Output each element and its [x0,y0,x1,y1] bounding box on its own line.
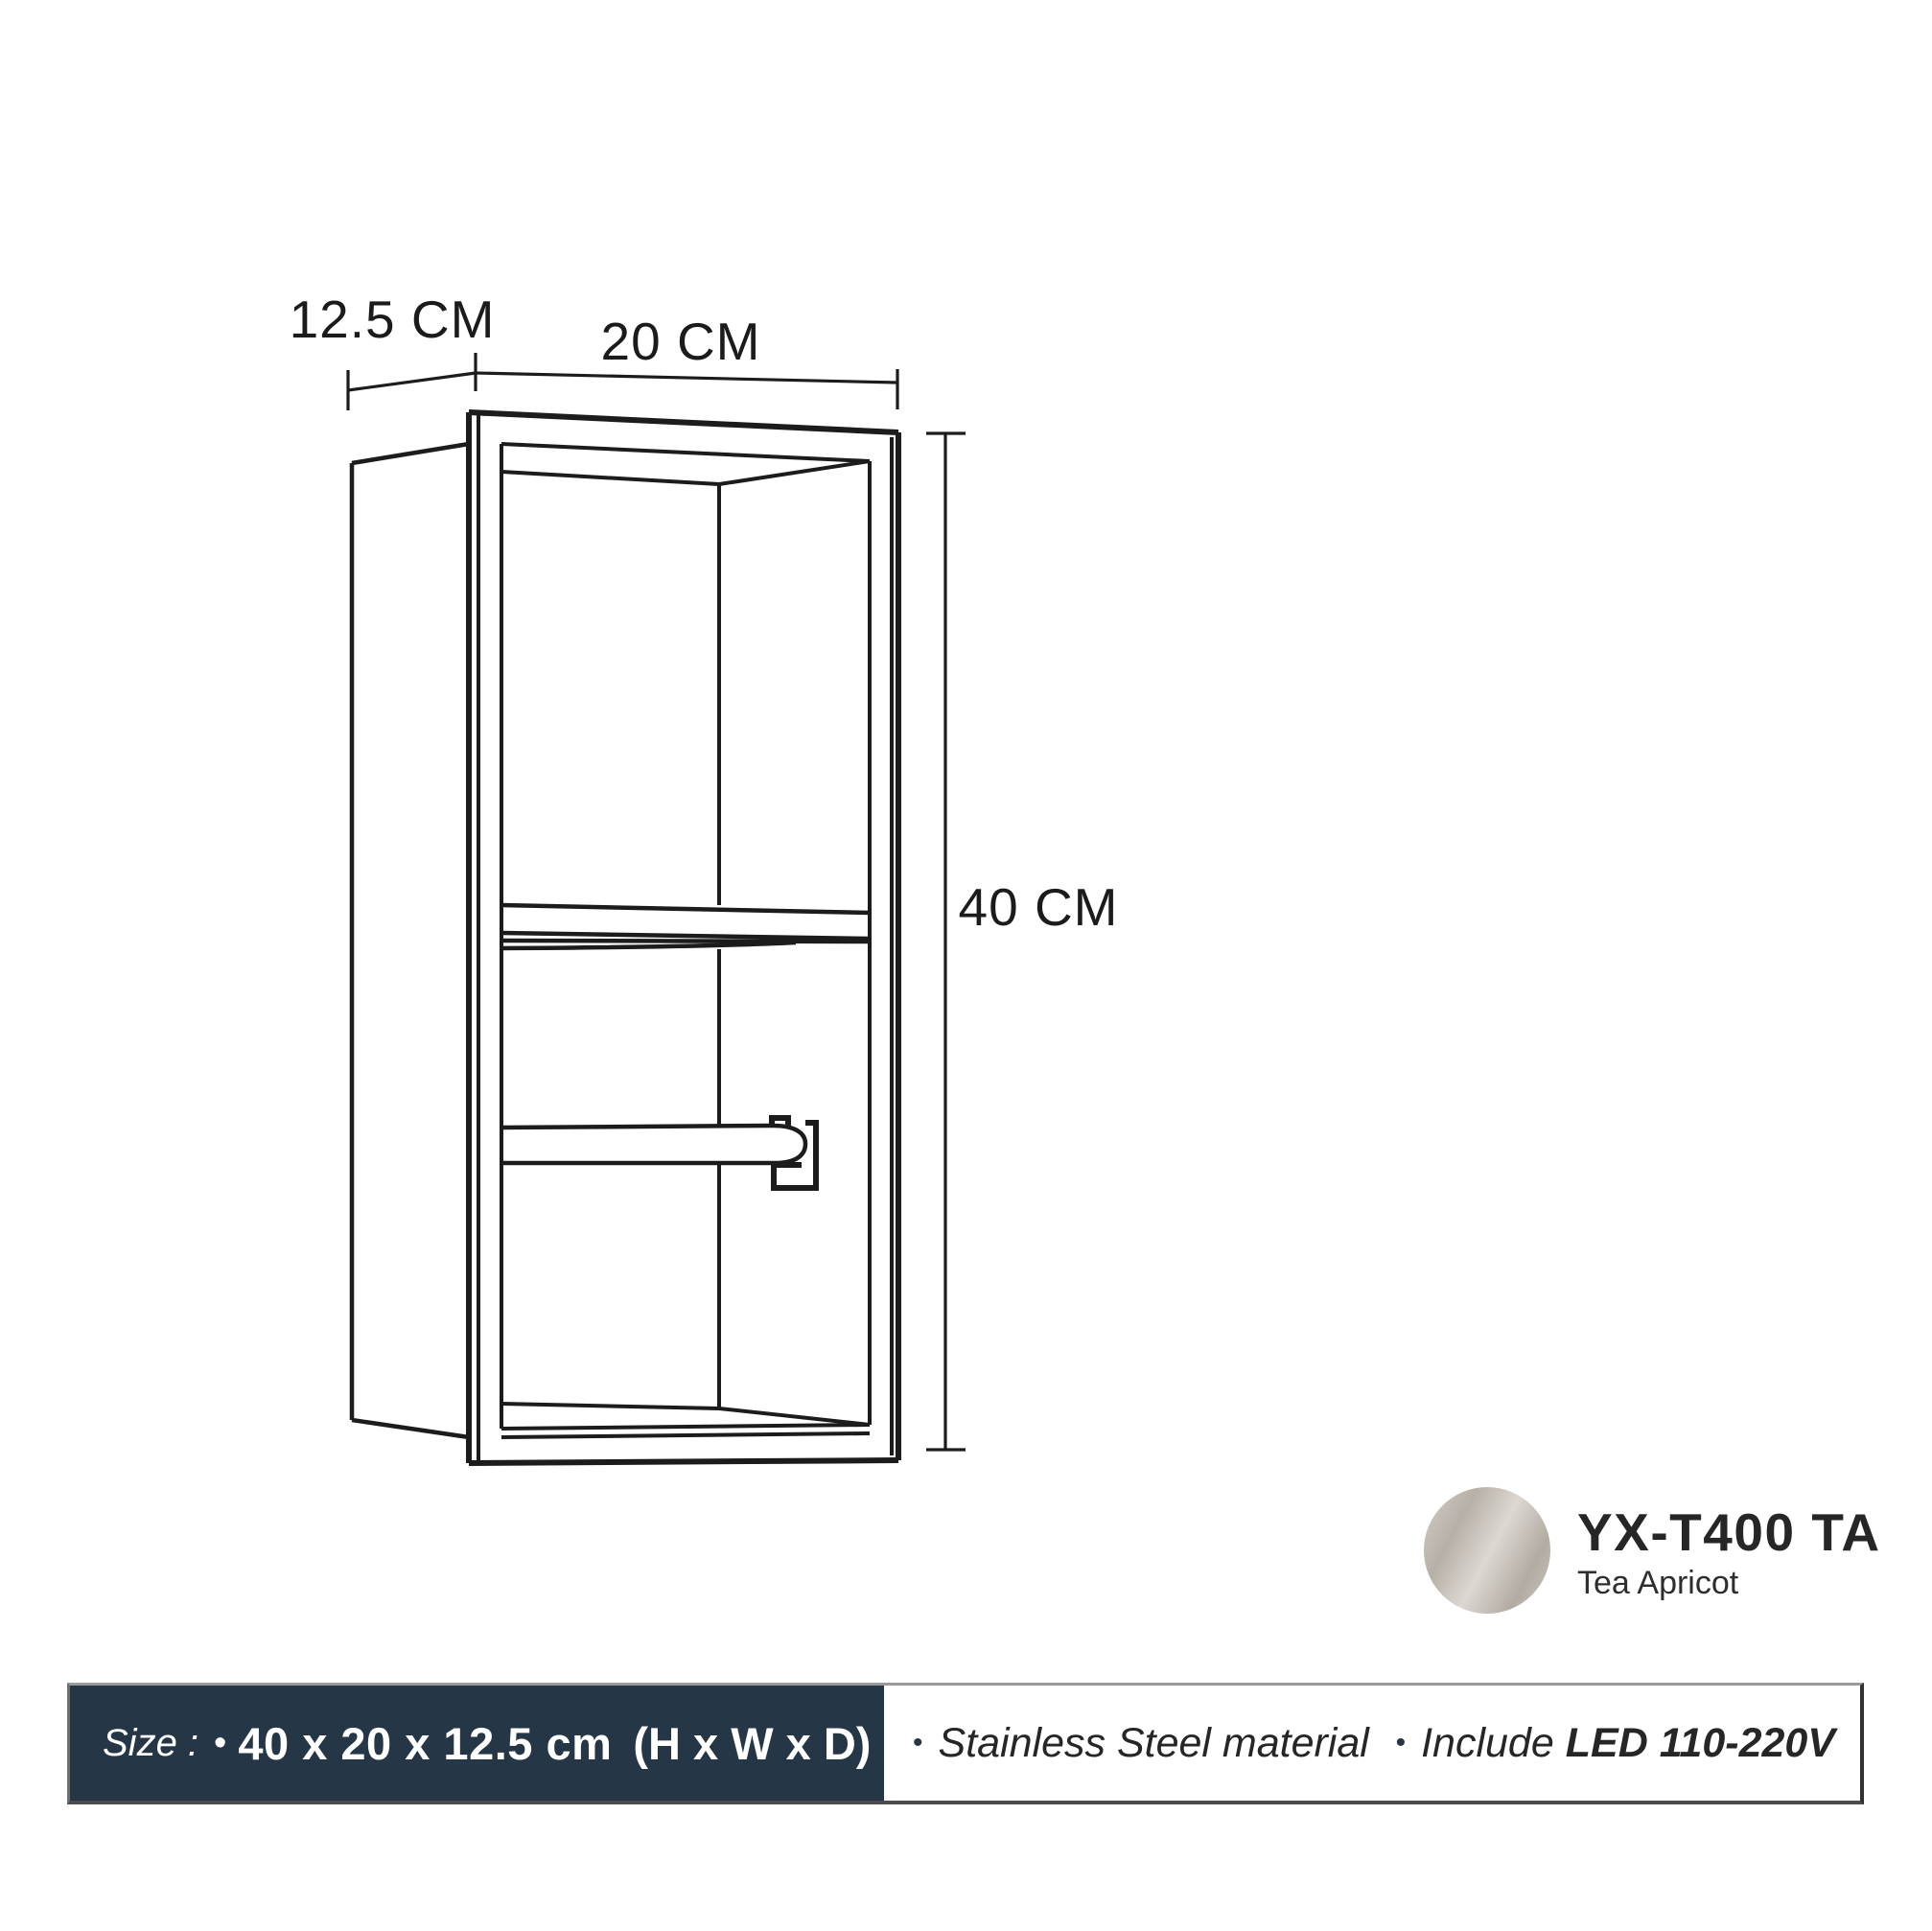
cabinet-diagram: 12.5 CM 20 CM 40 CM [0,0,1932,1931]
bullet-icon: • [913,1727,923,1759]
size-label: Size : [103,1722,198,1765]
cabinet-shelf [501,905,871,948]
spec-box: • Stainless Steel material • Include LED… [884,1686,1860,1801]
depth-dimension-label: 12.5 CM [290,290,496,349]
page: 12.5 CM 20 CM 40 CM YX-T400 TA Tea Apric… [0,0,1932,1931]
color-swatch-icon [1424,1487,1550,1614]
product-model: YX-T400 TA [1577,1506,1881,1559]
size-value: 40 x 20 x 12.5 cm [238,1717,612,1770]
size-bar: Size : • 40 x 20 x 12.5 cm (H x W x D) •… [67,1683,1864,1804]
material-text: Stainless Steel material [939,1720,1369,1767]
product-text: YX-T400 TA Tea Apricot [1577,1506,1881,1599]
height-dimension-label: 40 CM [959,877,1119,937]
dimension-lines [348,353,966,1450]
towel-bar [501,1118,816,1188]
size-suffix: (H x W x D) [633,1717,871,1770]
size-box: Size : • 40 x 20 x 12.5 cm (H x W x D) [70,1686,884,1801]
product-color-name: Tea Apricot [1577,1567,1881,1599]
material-spec: • Stainless Steel material [913,1720,1369,1767]
bullet-icon: • [214,1723,226,1764]
bullet-icon: • [1396,1727,1407,1759]
include-value: LED 110-220V [1566,1720,1835,1767]
include-spec: • Include LED 110-220V [1396,1720,1835,1767]
include-prefix: Include [1421,1720,1554,1767]
cabinet-side-panel [352,444,469,1437]
width-dimension-label: 20 CM [601,312,761,371]
product-label: YX-T400 TA Tea Apricot [1424,1487,1881,1614]
